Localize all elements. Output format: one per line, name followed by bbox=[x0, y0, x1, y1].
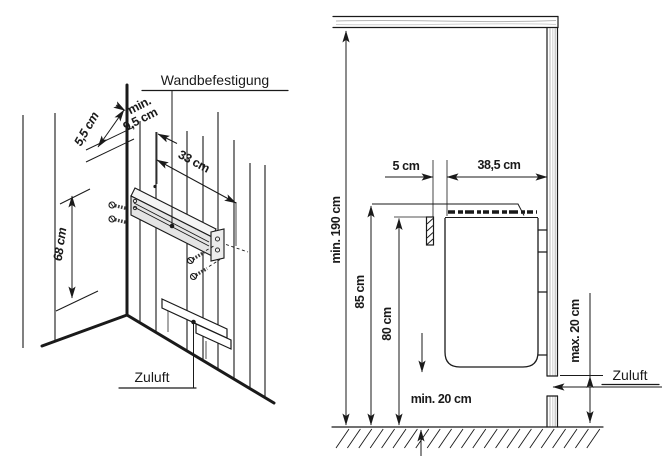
dim-wall-gap-label: 5 cm bbox=[393, 159, 420, 173]
screw bbox=[109, 202, 126, 208]
dimension-min-clearance: min. 9,5 cm bbox=[116, 94, 177, 144]
screw bbox=[188, 253, 205, 264]
dimension-bracket-height: 68 cm bbox=[51, 189, 98, 311]
bracket-end-cap bbox=[211, 229, 224, 261]
callout-dot bbox=[191, 320, 196, 325]
dim-inlet-height-label: max. 20 cm bbox=[568, 299, 582, 363]
air-supply-label-left: Zuluft bbox=[134, 369, 169, 385]
dimension-bracket-mount: 80 cm bbox=[380, 219, 399, 426]
dim-bracket-width-label: 33 cm bbox=[176, 147, 212, 175]
dim-top-edge-label: 85 cm bbox=[353, 275, 367, 309]
installation-diagram: 5,5 cm min. 9,5 cm 33 cm 68 cm Wandbefes… bbox=[0, 0, 663, 474]
diagram-canvas: 5,5 cm min. 9,5 cm 33 cm 68 cm Wandbefes… bbox=[0, 0, 663, 474]
wall-bracket bbox=[131, 188, 224, 261]
air-inlet-opening bbox=[547, 376, 558, 396]
dim-corner-offset-label: 5,5 cm bbox=[71, 109, 102, 148]
screw bbox=[191, 269, 208, 280]
dim-ceiling-height-label: min. 190 cm bbox=[329, 196, 343, 263]
floor bbox=[332, 427, 603, 448]
air-supply-callout-right: Zuluft bbox=[553, 367, 662, 387]
dim-bracket-mount-label: 80 cm bbox=[380, 307, 394, 341]
bracket-callout-label: Wandbefestigung bbox=[161, 72, 269, 88]
screw bbox=[109, 216, 126, 222]
dim-floor-clearance-label: min. 20 cm bbox=[411, 392, 472, 406]
callout-dot bbox=[170, 224, 175, 229]
dim-bracket-height-label: 68 cm bbox=[51, 227, 70, 262]
dimension-top-edge: 85 cm bbox=[353, 206, 371, 425]
top-edge-reference-line bbox=[372, 204, 524, 216]
dimension-inlet-height: max. 20 cm bbox=[560, 293, 603, 423]
air-supply-callout-left: Zuluft bbox=[119, 320, 196, 388]
air-supply-label-right: Zuluft bbox=[612, 367, 647, 383]
left-wall-panels bbox=[23, 113, 55, 348]
dim-heater-depth-label: 38,5 cm bbox=[477, 158, 520, 172]
dimension-top-gaps: 5 cm 38,5 cm bbox=[385, 158, 547, 217]
bracket-cross-section bbox=[427, 217, 434, 245]
wall-section bbox=[547, 28, 558, 427]
heater-wall-mounts bbox=[538, 230, 547, 355]
dimension-corner-offset: 5,5 cm bbox=[71, 109, 134, 162]
dimension-ceiling-height: min. 190 cm bbox=[329, 31, 346, 425]
air-vent bbox=[162, 299, 231, 359]
section-view: min. 190 cm 85 cm 80 cm 5 cm 38,5 cm min… bbox=[329, 17, 662, 457]
heater bbox=[445, 212, 547, 367]
corner-view: 5,5 cm min. 9,5 cm 33 cm 68 cm Wandbefes… bbox=[23, 72, 288, 403]
ceiling bbox=[333, 17, 558, 28]
